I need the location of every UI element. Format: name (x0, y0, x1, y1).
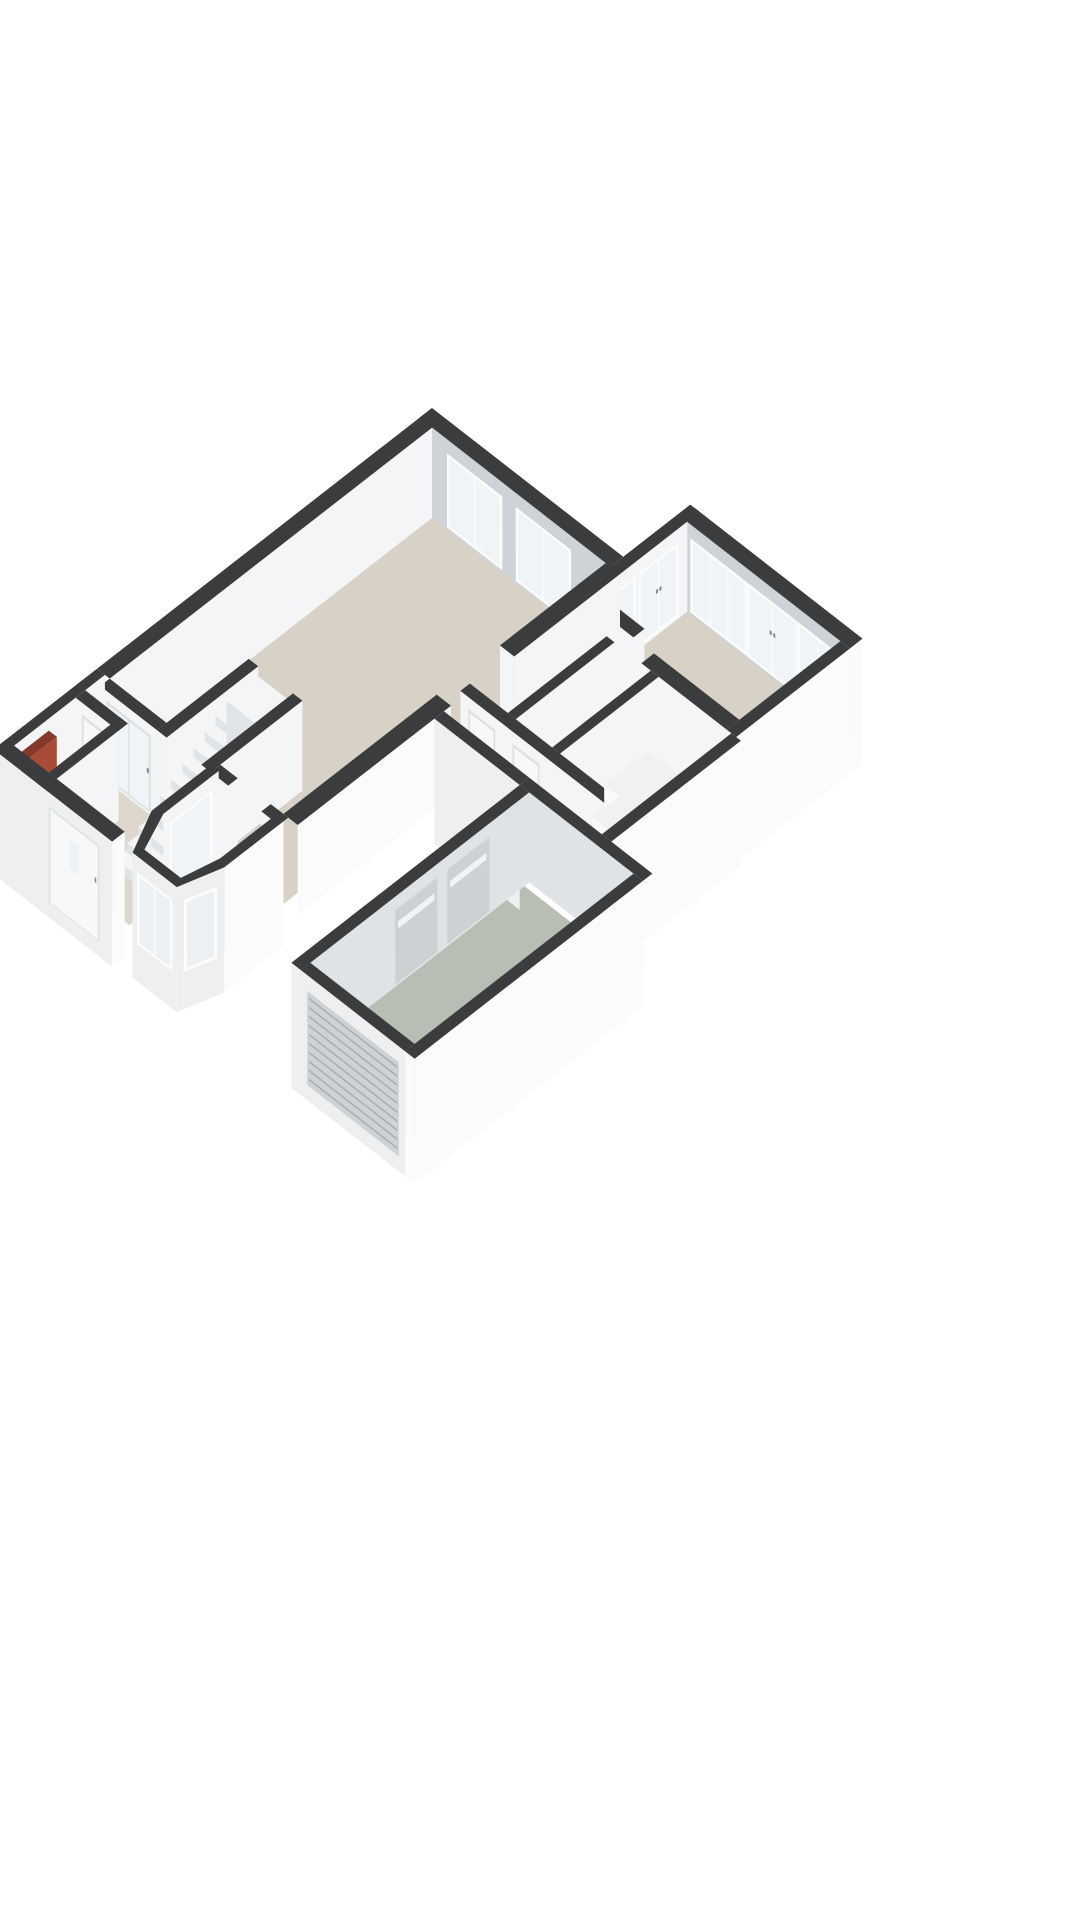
floorplan-page (0, 0, 1080, 1920)
floorplan-canvas (0, 0, 1080, 1920)
